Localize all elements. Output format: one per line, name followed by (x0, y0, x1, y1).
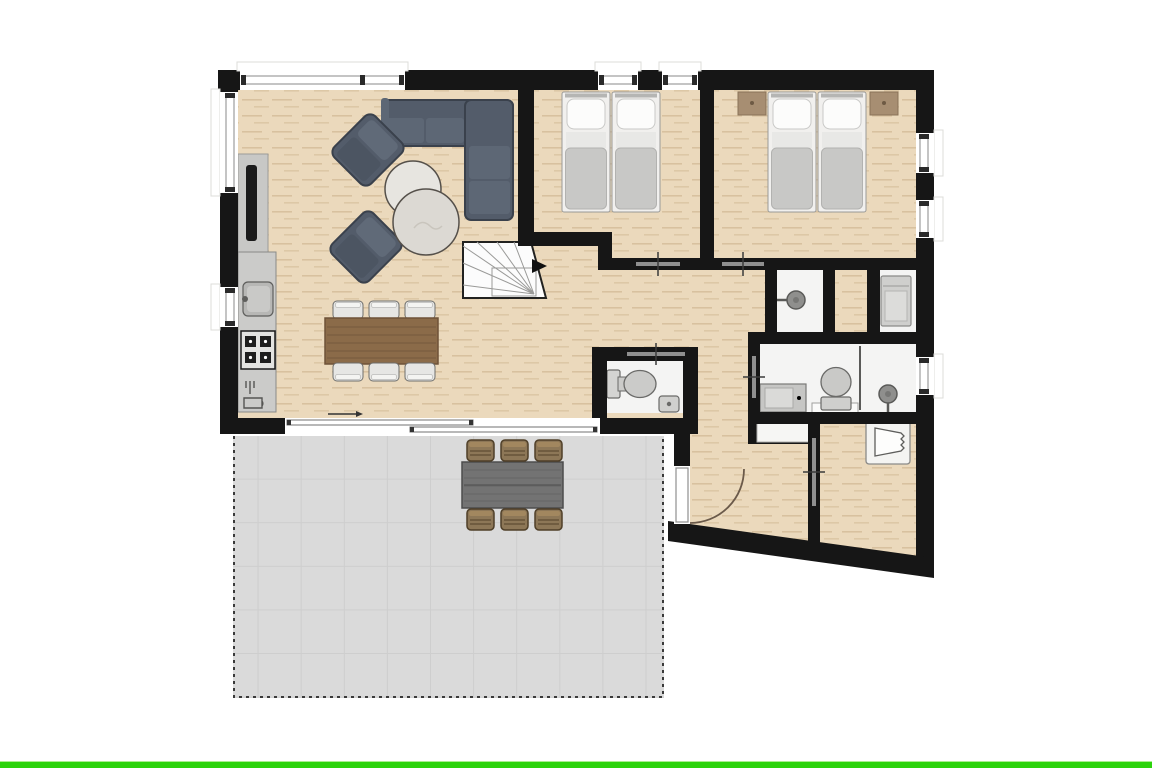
laundry-niche (881, 276, 911, 326)
nightstand (870, 92, 898, 115)
toilet-tank (821, 397, 851, 410)
bottom-green-bar (0, 761, 1152, 768)
wall-shower-east (823, 270, 835, 332)
wall-bathroom-north (748, 332, 916, 344)
bathroom-east-window (916, 354, 943, 398)
tv-panel (238, 154, 268, 252)
terrace-floor (233, 436, 664, 698)
corner-hand-basin (659, 396, 679, 412)
wall-niche-west (867, 258, 880, 332)
wall-bedroom1-bedroom2 (700, 88, 714, 258)
single-bed (818, 92, 866, 212)
wall-shower-west (765, 270, 777, 332)
single-bed (768, 92, 816, 212)
outdoor-chair (535, 440, 562, 461)
bedroom-1-north-window-a (595, 62, 641, 90)
bedroom-2-east-window-b (916, 197, 943, 241)
wall-wc-east (683, 347, 698, 434)
room-terrace (233, 436, 664, 698)
dining-chair (405, 363, 435, 381)
room-storage (866, 420, 910, 464)
dining-chair (333, 301, 363, 319)
bedroom-2-east-window-a (916, 130, 943, 176)
outdoor-chair (535, 509, 562, 530)
shower-head-icon (787, 291, 805, 309)
room-dining (325, 301, 438, 381)
floor-plan-screenshot (0, 0, 1152, 768)
wall-bathroom-south (748, 412, 916, 424)
shower-head-icon (879, 385, 897, 403)
wall-living-bedroom1 (518, 88, 534, 240)
single-bed (612, 92, 660, 212)
toilet-bowl (821, 368, 851, 397)
room-kitchen (238, 252, 276, 412)
living-room-north-window (237, 62, 408, 90)
living-room-west-window (211, 89, 238, 196)
nightstand (738, 92, 766, 115)
outdoor-chair (467, 440, 494, 461)
dining-table (325, 318, 438, 364)
kitchen-west-window (211, 284, 238, 330)
dining-chair (405, 301, 435, 319)
floor-plan (0, 0, 1152, 768)
stove (241, 331, 275, 369)
toilet-bowl (624, 371, 656, 398)
outdoor-chair (501, 440, 528, 461)
outdoor-chair (467, 509, 494, 530)
outdoor-table (462, 462, 563, 508)
bedroom-1-north-window-b (659, 62, 701, 90)
kitchen-sink (242, 282, 273, 316)
dining-chair (333, 363, 363, 381)
wardrobe-icon (875, 428, 904, 456)
outdoor-chair (501, 509, 528, 530)
dining-chair (369, 363, 399, 381)
vanity-sink (760, 384, 806, 412)
round-coffee-table (393, 189, 459, 255)
wall-bedroom1-south (518, 232, 612, 246)
dining-chair (369, 301, 399, 319)
single-bed (562, 92, 610, 212)
